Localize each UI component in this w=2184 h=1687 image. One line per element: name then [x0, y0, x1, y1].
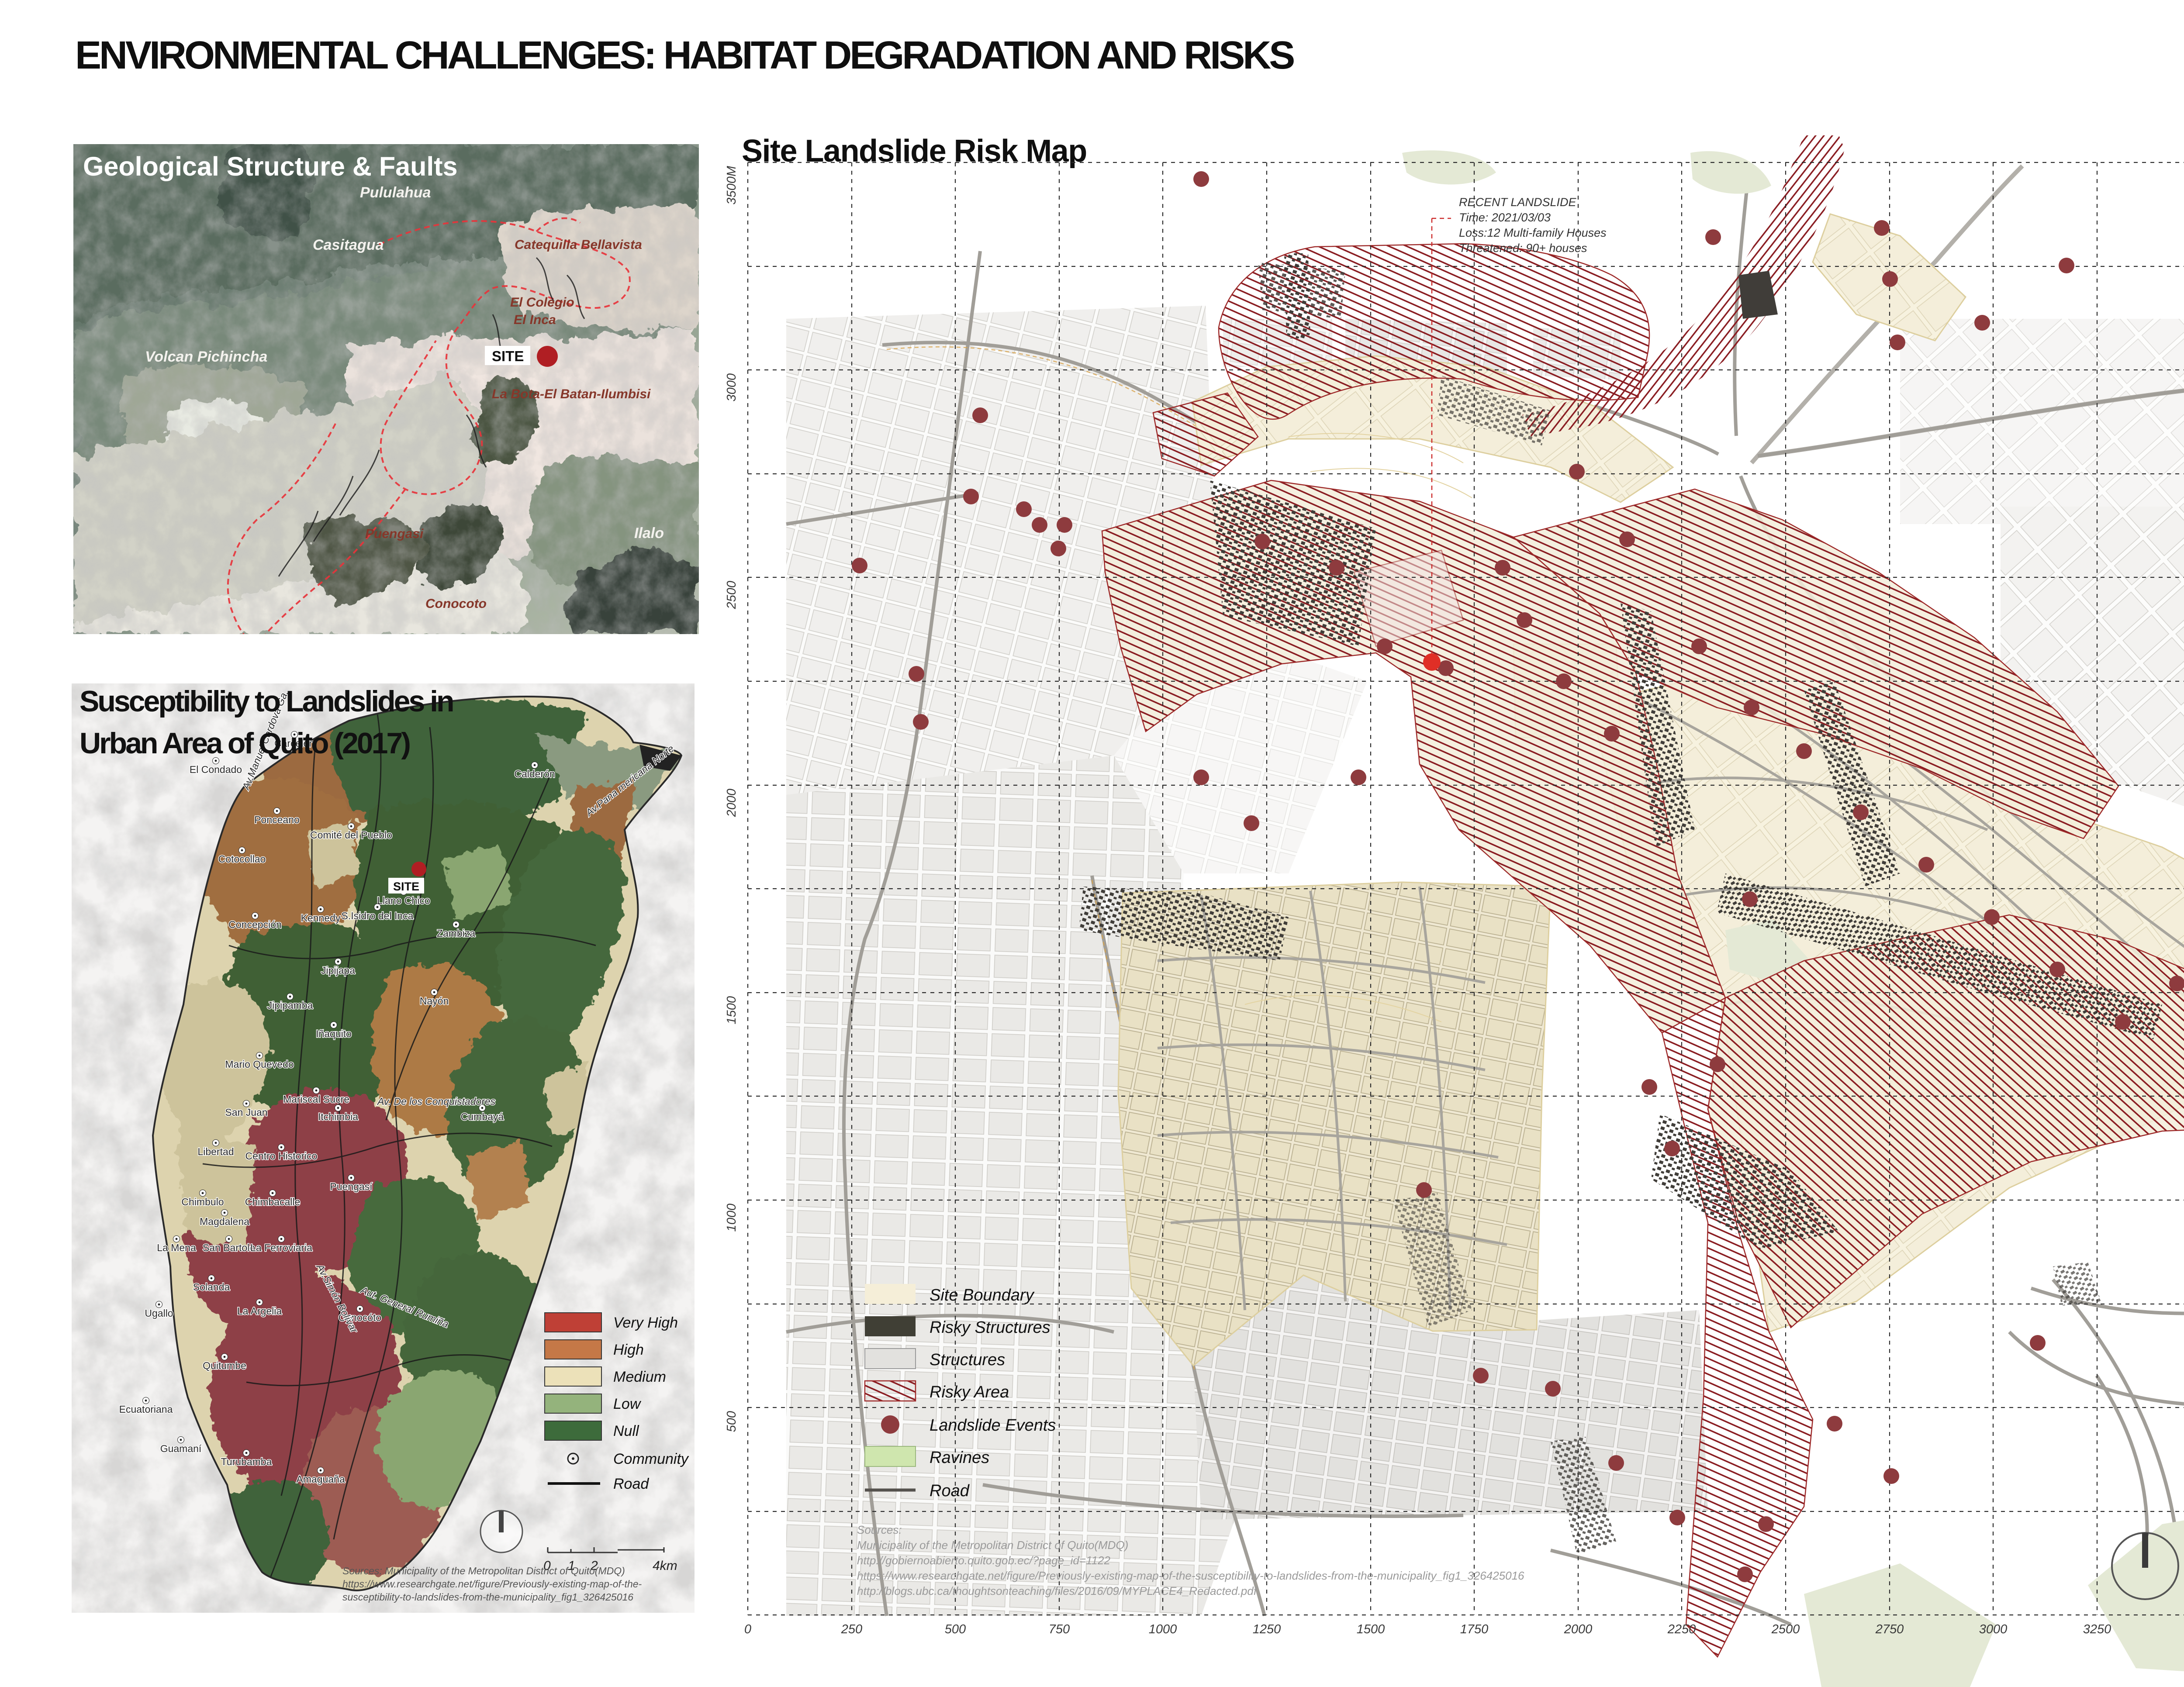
svg-text:2750: 2750 — [1875, 1622, 1904, 1636]
svg-text:250: 250 — [841, 1622, 862, 1636]
svg-text:2000: 2000 — [725, 789, 739, 818]
svg-text:Magdalena: Magdalena — [200, 1216, 249, 1227]
svg-text:1250: 1250 — [1253, 1622, 1281, 1636]
svg-text:Comité del Pueblo: Comité del Pueblo — [310, 829, 392, 841]
svg-text:Chimbulo: Chimbulo — [181, 1196, 224, 1207]
svg-text:Susceptibility to Landslides i: Susceptibility to Landslides in — [79, 685, 453, 718]
svg-text:Threatened: 90+ houses: Threatened: 90+ houses — [1459, 241, 1587, 255]
svg-text:Centro Historico: Centro Historico — [245, 1150, 318, 1162]
svg-text:Puengasí: Puengasí — [330, 1181, 373, 1192]
svg-text:Municipality of the Metropolit: Municipality of the Metropolitan Distric… — [857, 1539, 1128, 1552]
svg-text:Very High: Very High — [613, 1314, 678, 1331]
svg-text:3000: 3000 — [725, 373, 739, 402]
svg-text:Pululahua: Pululahua — [360, 184, 431, 201]
svg-text:Iñaquito: Iñaquito — [316, 1028, 352, 1039]
svg-text:Road: Road — [930, 1482, 970, 1500]
svg-text:Itchimbia: Itchimbia — [318, 1111, 358, 1122]
svg-text:1000: 1000 — [725, 1204, 739, 1232]
svg-text:San Bartolo: San Bartolo — [203, 1242, 255, 1253]
svg-text:El Inca: El Inca — [514, 313, 556, 327]
svg-text:S.Isidro del Inca: S.Isidro del Inca — [342, 910, 414, 921]
svg-text:1000: 1000 — [1149, 1622, 1177, 1636]
svg-text:3500M: 3500M — [725, 166, 739, 205]
svg-text:Jipijapa: Jipijapa — [321, 965, 355, 976]
svg-text:0: 0 — [744, 1622, 751, 1636]
svg-text:Jipipamba: Jipipamba — [267, 1000, 313, 1011]
svg-text:https://www.researchgate.net/f: https://www.researchgate.net/figure/Prev… — [342, 1578, 642, 1590]
svg-text:Zambiza: Zambiza — [437, 928, 475, 939]
svg-text:Concepción: Concepción — [228, 919, 281, 930]
svg-text:3250: 3250 — [2083, 1622, 2111, 1636]
svg-text:1500: 1500 — [1357, 1622, 1385, 1636]
svg-text:Llano Chico: Llano Chico — [377, 895, 430, 906]
svg-text:SITE: SITE — [393, 880, 419, 893]
svg-text:Cumbayá: Cumbayá — [461, 1111, 504, 1122]
svg-text:La Bota-El Batan-Ilumbisi: La Bota-El Batan-Ilumbisi — [492, 387, 651, 401]
svg-text:750: 750 — [1049, 1622, 1070, 1636]
svg-text:Medium: Medium — [613, 1369, 666, 1385]
svg-text:https://www.researchgate.net/f: https://www.researchgate.net/figure/Prev… — [857, 1569, 1524, 1582]
svg-text:3000: 3000 — [1979, 1622, 2008, 1636]
svg-text:Community: Community — [613, 1451, 689, 1467]
svg-text:Amaguaña: Amaguaña — [296, 1473, 345, 1485]
svg-text:500: 500 — [725, 1411, 739, 1432]
svg-text:Low: Low — [613, 1396, 642, 1412]
svg-text:SITE: SITE — [492, 348, 524, 364]
svg-text:1500: 1500 — [725, 996, 739, 1025]
svg-text:Loss:12 Multi-family Houses: Loss:12 Multi-family Houses — [1459, 226, 1607, 239]
svg-text:susceptibility-to-landslides-f: susceptibility-to-landslides-from-the-mu… — [342, 1591, 633, 1603]
svg-text:Ravines: Ravines — [930, 1449, 989, 1467]
svg-text:Cotocollao: Cotocollao — [218, 853, 266, 865]
svg-text:Geological Structure & Faults: Geological Structure & Faults — [83, 152, 458, 181]
svg-text:1750: 1750 — [1460, 1622, 1489, 1636]
svg-text:2500: 2500 — [1771, 1622, 1800, 1636]
svg-text:Sources:: Sources: — [857, 1523, 902, 1536]
svg-text:2500: 2500 — [725, 581, 739, 610]
svg-text:Site Landslide Risk Map: Site Landslide Risk Map — [742, 134, 1087, 169]
svg-text:Ilalo: Ilalo — [634, 525, 664, 542]
svg-text:Ponceano: Ponceano — [254, 814, 300, 825]
svg-text:Sources: Municipality of the M: Sources: Municipality of the Metropolita… — [342, 1565, 625, 1577]
svg-text:Turubamba: Turubamba — [221, 1456, 272, 1467]
svg-text:Av. De los Conquistadores: Av. De los Conquistadores — [377, 1096, 496, 1107]
svg-text:Risky Area: Risky Area — [930, 1383, 1009, 1401]
svg-text:Guamaní: Guamaní — [160, 1443, 202, 1454]
svg-text:Libertad: Libertad — [197, 1146, 234, 1157]
svg-text:Puengasi: Puengasi — [365, 527, 424, 541]
svg-text:Structures: Structures — [930, 1351, 1005, 1369]
svg-text:Conocoto: Conocoto — [425, 597, 487, 611]
svg-text:High: High — [613, 1342, 644, 1358]
svg-text:Ecuatoriana: Ecuatoriana — [119, 1404, 173, 1415]
svg-text:Solanda: Solanda — [193, 1281, 230, 1293]
svg-text:2000: 2000 — [1564, 1622, 1593, 1636]
svg-text:Casitagua: Casitagua — [313, 237, 384, 253]
svg-text:http://gobiernoabierto.quito.g: http://gobiernoabierto.quito.gob.ec/?pag… — [857, 1554, 1110, 1567]
svg-text:Mariscal Sucre: Mariscal Sucre — [283, 1094, 349, 1105]
svg-text:4km: 4km — [653, 1559, 677, 1573]
svg-text:2250: 2250 — [1667, 1622, 1696, 1636]
svg-text:El Condado: El Condado — [190, 764, 242, 775]
svg-text:Volcan Pichincha: Volcan Pichincha — [145, 348, 267, 365]
svg-text:Road: Road — [613, 1476, 649, 1492]
svg-text:La Mena: La Mena — [157, 1242, 196, 1253]
svg-text:RECENT LANDSLIDE: RECENT LANDSLIDE — [1459, 196, 1577, 209]
svg-text:Time: 2021/03/03: Time: 2021/03/03 — [1459, 211, 1551, 224]
svg-text:Landslide Events: Landslide Events — [930, 1416, 1056, 1435]
svg-text:Urban Area of Quito (2017): Urban Area of Quito (2017) — [79, 727, 410, 760]
svg-text:Quitumbe: Quitumbe — [203, 1360, 246, 1371]
svg-text:Kennedy: Kennedy — [301, 912, 341, 924]
svg-text:San Juan: San Juan — [225, 1107, 267, 1118]
svg-text:Catequilla Bellavista: Catequilla Bellavista — [515, 238, 642, 252]
svg-text:Null: Null — [613, 1423, 639, 1439]
svg-text:Chimbacalle: Chimbacalle — [245, 1196, 301, 1207]
svg-text:Ugallo: Ugallo — [145, 1308, 173, 1319]
svg-text:Nayón: Nayón — [420, 995, 449, 1007]
svg-text:Mario Quevedo: Mario Quevedo — [225, 1059, 294, 1070]
svg-text:http://blogs.ubc.ca/thoughtson: http://blogs.ubc.ca/thoughtsonteaching/f… — [857, 1584, 1258, 1597]
svg-text:Site Boundary: Site Boundary — [930, 1286, 1035, 1304]
svg-text:El Colegio: El Colegio — [510, 295, 574, 310]
svg-text:Calderón: Calderón — [514, 768, 555, 780]
svg-text:Risky Structures: Risky Structures — [930, 1318, 1051, 1337]
svg-text:La Ferroviaria: La Ferroviaria — [250, 1242, 312, 1253]
svg-text:500: 500 — [945, 1622, 966, 1636]
svg-text:La Argelia: La Argelia — [237, 1305, 282, 1317]
